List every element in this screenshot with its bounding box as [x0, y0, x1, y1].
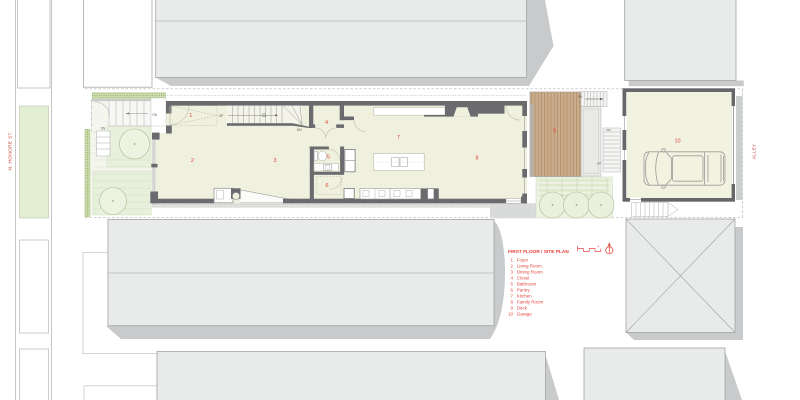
svg-text:1: 1: [189, 113, 192, 119]
svg-text:DN: DN: [153, 113, 158, 117]
svg-text:9: 9: [553, 129, 556, 135]
svg-text:6: 6: [325, 183, 328, 189]
svg-text:FIRST FLOOR / SITE PLAN: FIRST FLOOR / SITE PLAN: [508, 249, 569, 254]
svg-text:DN: DN: [607, 128, 611, 132]
svg-text:DN: DN: [297, 128, 302, 132]
svg-text:Closet: Closet: [517, 275, 531, 280]
svg-text:N. HONORE ST.: N. HONORE ST.: [8, 131, 14, 170]
svg-text:DN: DN: [101, 127, 106, 131]
svg-text:Bathroom: Bathroom: [517, 281, 537, 286]
svg-text:Garage: Garage: [517, 311, 533, 316]
svg-text:ALLEY: ALLEY: [752, 144, 757, 159]
svg-text:UP: UP: [219, 114, 223, 118]
svg-text:Kitchen: Kitchen: [517, 293, 533, 298]
svg-text:UP: UP: [597, 162, 601, 166]
svg-text:Dining Room: Dining Room: [517, 269, 543, 274]
svg-text:Living Room: Living Room: [517, 263, 542, 268]
svg-text:DN: DN: [578, 95, 582, 99]
svg-text:Family Room: Family Room: [517, 299, 544, 304]
svg-text:5: 5: [327, 155, 330, 161]
svg-text:7: 7: [397, 135, 400, 141]
svg-text:10: 10: [508, 311, 514, 316]
svg-text:10: 10: [674, 139, 680, 145]
svg-text:3: 3: [273, 158, 276, 164]
svg-text:2: 2: [191, 158, 194, 164]
svg-text:Pantry: Pantry: [517, 287, 531, 292]
svg-text:Foyer: Foyer: [517, 257, 529, 262]
svg-text:Deck: Deck: [517, 305, 528, 310]
svg-text:8: 8: [475, 156, 478, 162]
svg-text:4: 4: [325, 120, 328, 126]
